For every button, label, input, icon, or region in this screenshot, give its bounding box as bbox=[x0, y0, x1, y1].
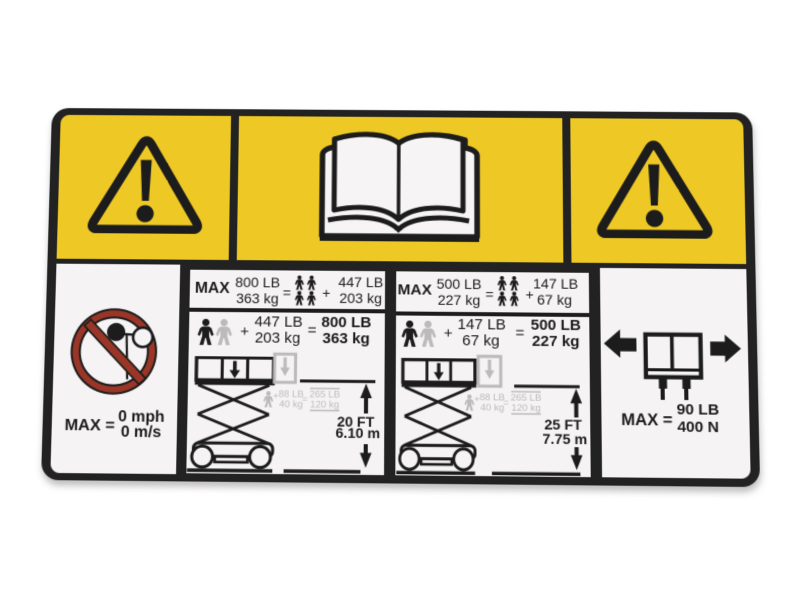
svg-text:88 LB: 88 LB bbox=[480, 392, 505, 403]
svg-text:265 LB: 265 LB bbox=[511, 392, 542, 403]
svg-text:88 LB: 88 LB bbox=[278, 389, 303, 400]
svg-text:=: = bbox=[504, 397, 510, 407]
svg-text:40 kg: 40 kg bbox=[481, 402, 505, 413]
svg-text:120 kg: 120 kg bbox=[512, 402, 541, 413]
svg-text:=: = bbox=[302, 394, 308, 404]
svg-text:120 kg: 120 kg bbox=[310, 399, 339, 410]
svg-text:265 LB: 265 LB bbox=[309, 389, 340, 400]
svg-text:40 kg: 40 kg bbox=[279, 399, 303, 410]
